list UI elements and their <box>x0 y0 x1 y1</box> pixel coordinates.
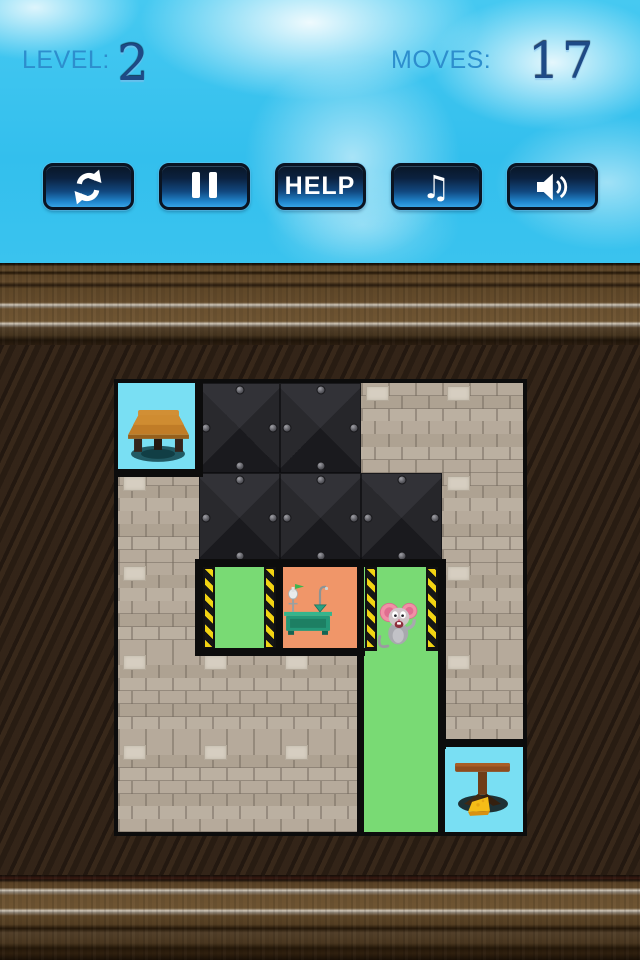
moves-value: 17 <box>528 36 596 86</box>
rivet <box>235 475 244 484</box>
wall-plaque <box>204 655 227 670</box>
tile-metal <box>280 473 361 563</box>
tile-brick <box>118 652 199 742</box>
wall-plaque <box>285 745 308 760</box>
tile-metal <box>199 473 280 563</box>
rivet <box>235 386 244 395</box>
cloud <box>245 55 460 260</box>
tile-brick <box>442 652 523 742</box>
level-label: LEVEL: <box>22 46 110 75</box>
wall-plaque <box>123 566 146 581</box>
tile-metal <box>361 473 442 563</box>
board-grid <box>118 383 523 832</box>
lab-bench <box>280 563 361 653</box>
tile-brick <box>442 473 523 563</box>
tile-brick <box>118 563 199 653</box>
rivet <box>235 461 244 470</box>
wall-plaque <box>366 386 389 401</box>
wall-plaque <box>123 476 146 491</box>
rivet <box>269 423 278 432</box>
tile-brick <box>280 742 361 832</box>
rivet <box>397 475 406 484</box>
wall-plaque <box>123 745 146 760</box>
tile-metal <box>280 383 361 473</box>
rivet <box>269 513 278 522</box>
wood-trim-top <box>0 263 640 345</box>
game-screen: LEVEL: 2 MOVES: 17 HELP ♫ <box>0 0 640 960</box>
start-goal-table <box>118 383 199 473</box>
tile-brick <box>199 742 280 832</box>
rivet <box>316 461 325 470</box>
wall-plaque <box>447 566 470 581</box>
music-note-icon: ♫ <box>422 171 451 203</box>
wall-plaque <box>447 476 470 491</box>
tile-metal <box>199 383 280 473</box>
tile-brick <box>442 563 523 653</box>
wall-plaque <box>285 655 308 670</box>
sky-background: LEVEL: 2 MOVES: 17 HELP ♫ <box>0 0 640 263</box>
tile-brick <box>442 383 523 473</box>
pause-button[interactable] <box>159 163 250 210</box>
hazard-stripe-bar <box>203 565 215 651</box>
tile-brick <box>280 652 361 742</box>
rivet <box>350 423 359 432</box>
wall-plaque <box>204 745 227 760</box>
mouse-character <box>361 563 442 653</box>
wall-plaque <box>447 386 470 401</box>
tile-brick <box>118 742 199 832</box>
rivet <box>316 386 325 395</box>
sound-button[interactable] <box>507 163 598 210</box>
music-button[interactable]: ♫ <box>391 163 482 210</box>
wall-plaque <box>123 655 146 670</box>
toolbar: HELP ♫ <box>0 163 640 210</box>
cheese-goal-table <box>442 742 523 832</box>
tile-brick <box>118 473 199 563</box>
wall-segment <box>357 648 364 832</box>
pause-icon <box>187 172 221 201</box>
tile-green[interactable] <box>361 742 442 832</box>
tile-greenh[interactable] <box>199 563 280 653</box>
moves-label: MOVES: <box>391 46 491 75</box>
wall-segment <box>195 559 203 656</box>
help-button[interactable]: HELP <box>275 163 366 210</box>
refresh-icon <box>69 168 107 206</box>
level-value: 2 <box>117 38 151 88</box>
rivet <box>202 513 211 522</box>
rivet <box>431 513 440 522</box>
speaker-icon <box>532 170 572 204</box>
restart-button[interactable] <box>43 163 134 210</box>
game-board <box>114 379 527 836</box>
tile-brick <box>361 383 442 473</box>
tile-brick <box>199 652 280 742</box>
hazard-stripe-bar <box>264 565 276 651</box>
wood-trim-bottom <box>0 875 640 960</box>
rivet <box>350 513 359 522</box>
wall-plaque <box>447 655 470 670</box>
tile-green[interactable] <box>361 652 442 742</box>
rivet <box>364 513 373 522</box>
rivet <box>316 475 325 484</box>
rivet <box>283 513 292 522</box>
rivet <box>283 423 292 432</box>
